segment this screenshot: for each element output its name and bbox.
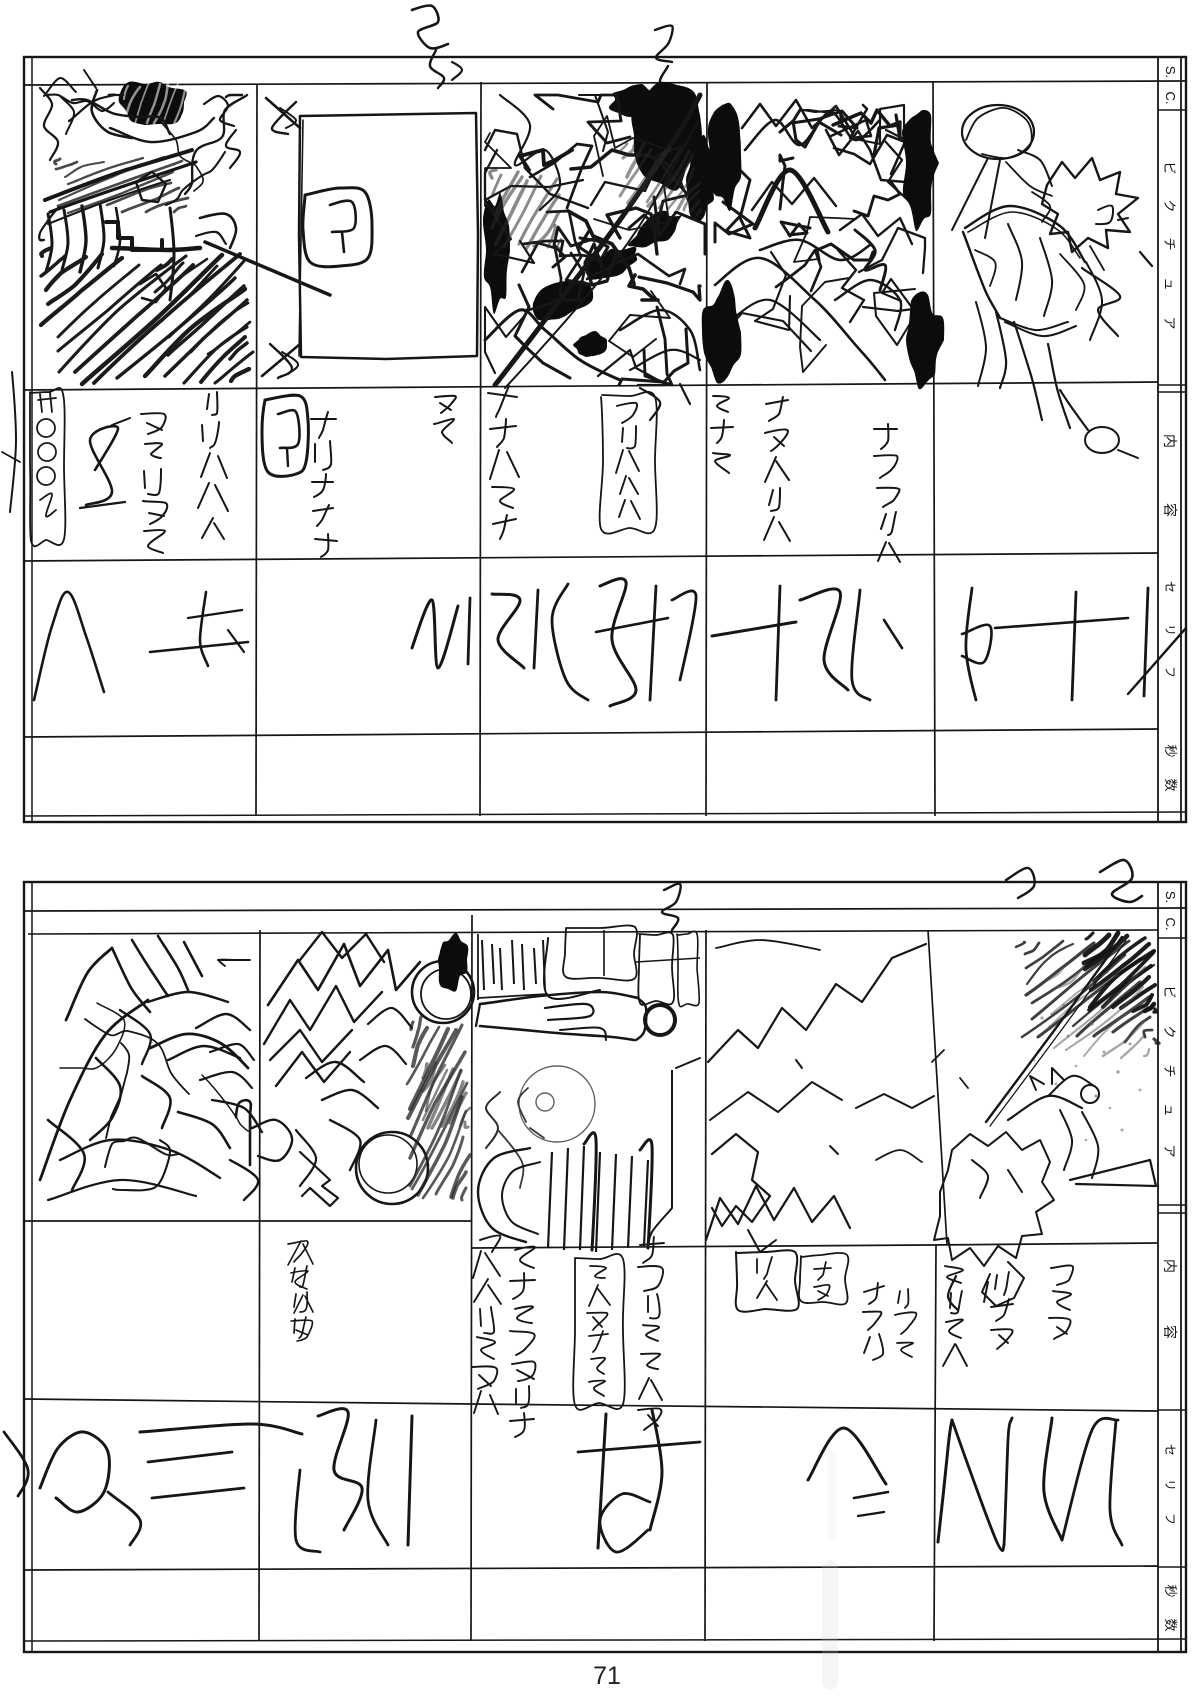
svg-text:ュ: ュ — [1162, 277, 1177, 290]
svg-text:チ: チ — [1162, 1064, 1177, 1077]
svg-text:C.: C. — [1163, 92, 1178, 105]
svg-text:71: 71 — [593, 1662, 621, 1690]
svg-text:ク: ク — [1162, 199, 1177, 212]
svg-text:フ: フ — [1163, 1513, 1177, 1525]
svg-text:数: 数 — [1163, 778, 1178, 791]
svg-text:ア: ア — [1162, 1144, 1177, 1157]
svg-text:容: 容 — [1162, 1325, 1178, 1339]
svg-text:ク: ク — [1162, 1025, 1177, 1038]
svg-text:チ: チ — [1162, 237, 1177, 250]
svg-text:C.: C. — [1163, 918, 1178, 931]
svg-text:S.: S. — [1163, 66, 1178, 78]
svg-text:リ: リ — [1163, 624, 1177, 636]
svg-text:数: 数 — [1163, 1618, 1178, 1631]
svg-text:ビ: ビ — [1162, 161, 1177, 174]
svg-text:内: 内 — [1162, 434, 1178, 448]
svg-text:秒: 秒 — [1163, 1584, 1178, 1597]
svg-text:セ: セ — [1163, 1444, 1177, 1456]
svg-text:ア: ア — [1162, 316, 1177, 329]
svg-text:ビ: ビ — [1162, 985, 1177, 998]
svg-text:セ: セ — [1163, 581, 1177, 593]
svg-text:容: 容 — [1162, 503, 1178, 517]
svg-text:秒: 秒 — [1163, 744, 1178, 757]
svg-text:ュ: ュ — [1162, 1103, 1177, 1116]
svg-text:フ: フ — [1163, 666, 1177, 678]
svg-text:S.: S. — [1163, 891, 1178, 903]
svg-text:内: 内 — [1162, 1259, 1178, 1273]
svg-text:リ: リ — [1163, 1479, 1177, 1491]
